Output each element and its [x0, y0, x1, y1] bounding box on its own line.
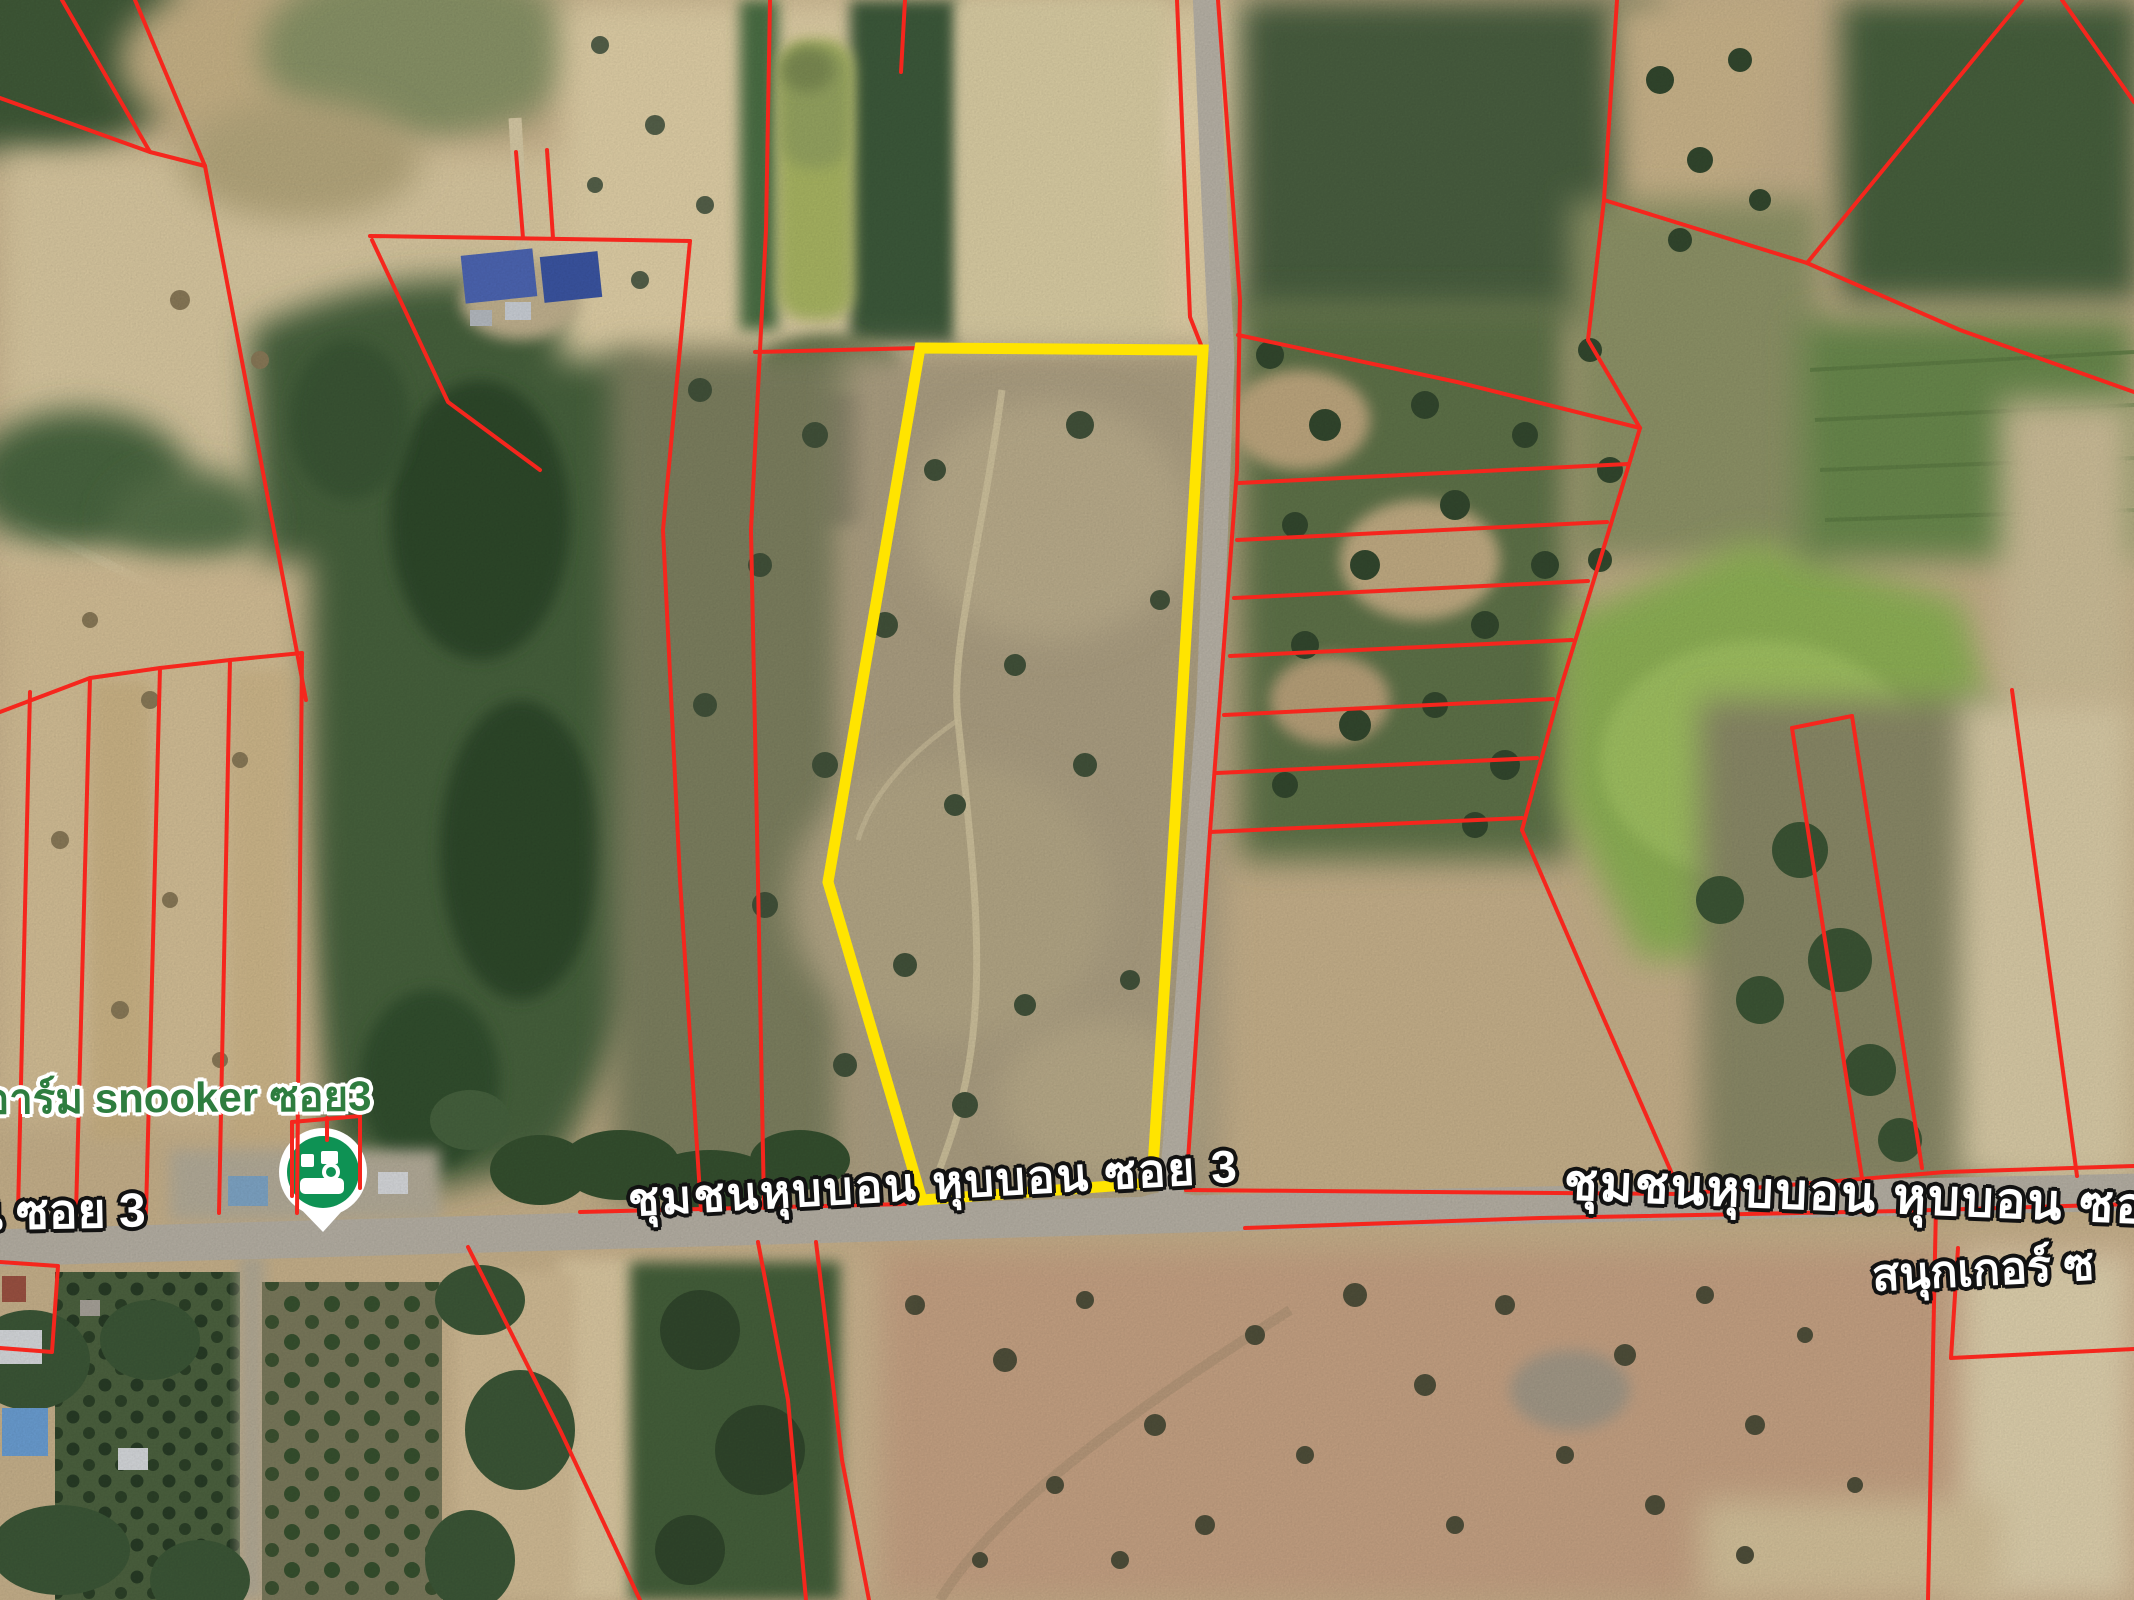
road-label-snooker-soi: สนุกเกอร์ ซ: [1871, 1240, 2096, 1299]
map-canvas[interactable]: [0, 0, 2134, 1600]
image-grain: [0, 0, 2134, 1600]
satellite-map-view[interactable]: อาร์ม snooker ซอย3 น ซอย 3 ชุมชนหุบบอน ห…: [0, 0, 2134, 1600]
road-label-left: น ซอย 3: [0, 1186, 146, 1240]
poi-label-snooker[interactable]: อาร์ม snooker ซอย3: [0, 1074, 372, 1121]
